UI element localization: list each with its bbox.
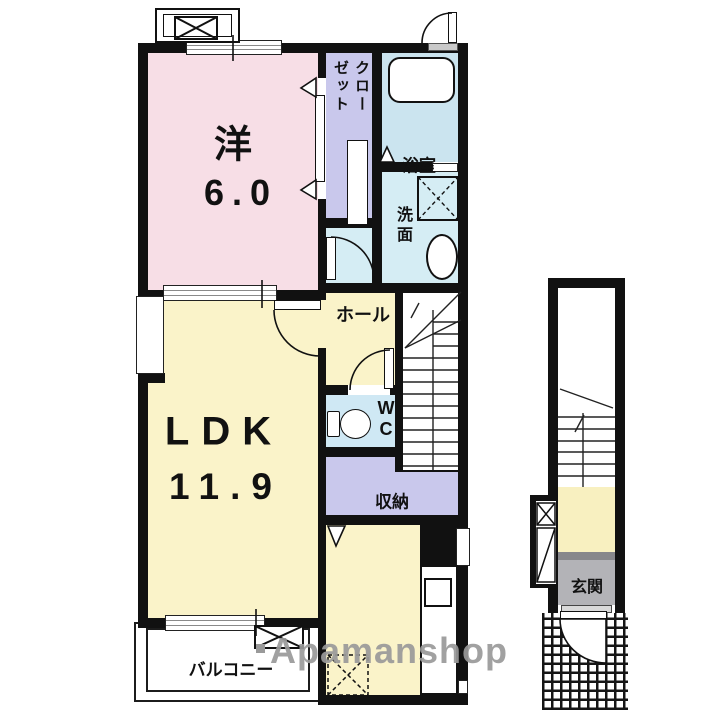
label-bath: 浴室 <box>402 152 436 177</box>
ldk-door-arc <box>274 310 320 356</box>
bath-door-triangle <box>380 147 394 162</box>
label-closet-line1: クロー <box>351 60 372 175</box>
label-closet-line2: ゼット <box>330 60 351 175</box>
washing-machine-pan <box>418 177 458 220</box>
watermark-mark <box>256 644 265 653</box>
stairs-1f-lines <box>558 389 615 487</box>
label-western-size: 6.0 <box>204 172 278 214</box>
label-wc: WC <box>375 398 396 440</box>
watermark-text: Apamanshop <box>270 630 508 672</box>
exterior-top-door-arc <box>422 13 452 43</box>
ac-unit-top-x <box>175 17 217 39</box>
label-western-room: 洋 <box>214 114 252 169</box>
label-ldk-size: 11.9 <box>169 466 283 508</box>
label-balcony: バルコニー <box>189 656 274 681</box>
label-hall: ホール <box>336 301 390 327</box>
stairs-2f-lines <box>403 292 461 470</box>
closet-door-triangle-top <box>301 78 316 97</box>
label-entrance: 玄関 <box>571 573 603 597</box>
washroom-door-arc <box>331 237 374 280</box>
label-washroom: 洗面 <box>390 206 414 246</box>
label-ldk: LDK <box>165 410 283 455</box>
meter-box-x <box>537 503 555 582</box>
floor-plan: 洋 6.0 クロー ゼット 浴室 洗面 ホール WC 収納 LDK 11.9 バ… <box>0 0 720 720</box>
label-storage: 収納 <box>375 488 409 513</box>
label-closet: クロー ゼット <box>328 60 372 175</box>
entrance-door-arc <box>560 619 606 663</box>
ldk-kitchen-opening-triangle <box>328 526 345 546</box>
closet-door-triangle-bottom <box>301 180 316 199</box>
wc-door-arc <box>350 350 390 390</box>
